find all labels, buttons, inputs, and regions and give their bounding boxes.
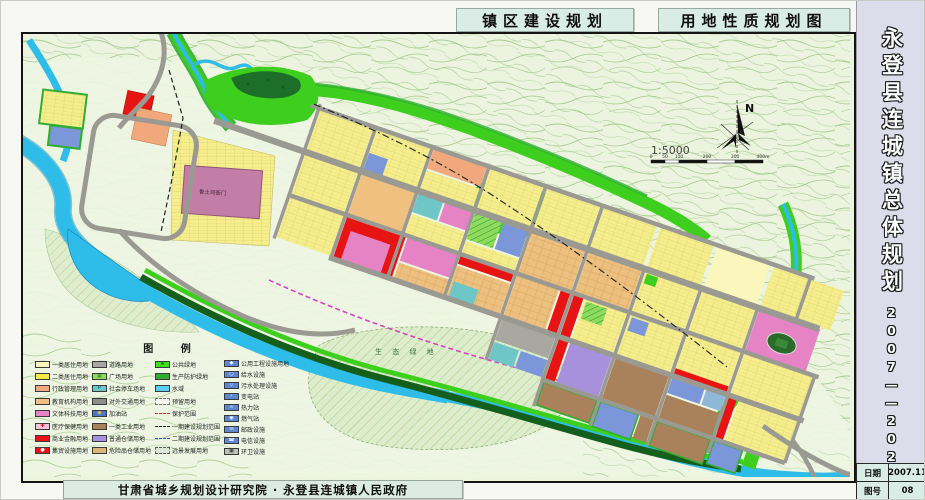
legend-swatch [35,398,50,405]
legend-item: ✚医疗保健用地 [35,420,88,432]
legend-label: 预留用地 [172,397,196,406]
legend-item: 水域 [155,383,220,395]
legend-item: 商业金融用地 [35,432,88,444]
legend-item: ▽污水处理设施 [224,380,289,391]
scale-tick: 400m [757,154,770,160]
legend-swatch [35,361,50,368]
legend-swatch [92,447,107,454]
legend-swatch [35,410,50,417]
legend-label: 二类居住用地 [52,372,88,381]
scale-tick: 200 [703,154,712,160]
legend-label: 一类工业用地 [109,422,145,431]
sheet-number-value: 08 [888,481,925,500]
date-value: 2007.11 [888,463,925,482]
legend-label: 道路用地 [109,360,133,369]
sheet-title-right: 用地性质规划图 [658,8,850,32]
sheet-title-left-text: 镇区建设规划 [482,10,608,31]
legend-swatch: P [92,385,107,392]
legend-item: 远景发展用地 [155,445,220,457]
legend-item: 行政管理用地 [35,383,88,395]
legend-item: 生产防护绿地 [155,370,220,382]
legend-label: 医疗保健用地 [52,422,88,431]
legend-item: 教育机构用地 [35,395,88,407]
legend-item: 对外交通用地 [92,395,151,407]
legend-swatch [92,361,107,368]
legend-item: ○给水设施 [224,369,289,380]
legend-swatch [35,373,50,380]
legend-item: ♣公共绿地 [155,358,220,370]
legend-swatch [155,435,170,442]
legend-swatch [155,373,170,380]
legend-item: 预留用地 [155,395,220,407]
legend-label: 给水设施 [241,370,265,379]
legend-label: 燃气站 [241,414,259,423]
scale-tick: 50 [662,154,668,160]
legend-item: 二类居住用地 [35,370,88,382]
legend-item: ⚡变电站 [224,391,289,402]
legend-swatch: ⚡ [224,393,239,400]
legend-item: 一期建设规划范围 [155,420,220,432]
legend-item: ●集贸设施用地 [35,445,88,457]
legend-swatch: ● [35,447,50,454]
legend-swatch [35,435,50,442]
legend-swatch: ◆ [224,360,239,367]
legend-label: 行政管理用地 [52,384,88,393]
legend-label: 普通仓储用地 [109,434,145,443]
credit-text: 甘肃省城乡规划设计研究院 · 永登县连城镇人民政府 [118,482,408,498]
legend-label: 教育机构用地 [52,397,88,406]
sheet-title-left: 镇区建设规划 [456,8,634,32]
scale-tick: 300 [731,154,740,160]
legend-label: 远景发展用地 [172,446,208,455]
eco-green-label: 生 态 绿 地 [375,347,438,356]
legend-item: ◆公用工程设施用地 [224,358,289,369]
legend-label: 电信设施 [241,436,265,445]
legend-swatch: ▽ [224,382,239,389]
legend-label: 商业金融用地 [52,434,88,443]
legend-swatch [155,398,170,405]
legend-swatch [92,423,107,430]
legend-swatch: ◉ [92,410,107,417]
legend-label: 社会停车场地 [109,384,145,393]
legend-item: ☎电信设施 [224,435,289,446]
legend-label: 污水处理设施 [241,381,277,390]
legend-column-4: ◆公用工程设施用地○给水设施▽污水处理设施⚡变电站≈热力站◉燃气站✉邮政设施☎电… [224,358,289,457]
legend-column-2: 道路用地▦广场用地P社会停车场地对外交通用地◉加油站一类工业用地普通仓储用地危险… [92,358,151,457]
legend-column-1: 一类居住用地二类居住用地行政管理用地教育机构用地文体科技用地✚医疗保健用地商业金… [35,358,88,457]
title-block-table: 日期 2007.11 图号 08 [856,464,925,500]
legend-label: 热力站 [241,403,259,412]
legend-label: 公用工程设施用地 [241,359,289,368]
scale-tick: 100 [675,154,684,160]
legend-item: 保护范围 [155,408,220,420]
credit-bar: 甘肃省城乡规划设计研究院 · 永登县连城镇人民政府 [63,480,463,499]
legend-item: ◉燃气站 [224,413,289,424]
legend-swatch [155,447,170,454]
legend-label: 加油站 [109,409,127,418]
legend-item: 二期建设规划范围 [155,432,220,444]
legend-title: 图 例 [35,340,311,355]
map-area[interactable]: 鲁土司衙门 [21,32,856,483]
scale-tick: 0 [650,154,653,160]
legend-item: 道路用地 [92,358,151,370]
legend-item: 一类居住用地 [35,358,88,370]
legend-label: 广场用地 [109,372,133,381]
date-label: 日期 [856,463,889,482]
legend-item: ≈热力站 [224,402,289,413]
legend-swatch [155,423,170,430]
legend-swatch [92,398,107,405]
legend-swatch: ♣ [155,361,170,368]
legend-swatch [92,435,107,442]
legend-swatch: ▦ [92,373,107,380]
legend-label: 二期建设规划范围 [172,434,220,443]
legend-label: 文体科技用地 [52,409,88,418]
legend-swatch: ◉ [224,415,239,422]
legend-item: ▣环卫设施 [224,446,289,457]
sheet-title-right-text: 用地性质规划图 [680,10,827,31]
legend-column-3: ♣公共绿地生产防护绿地水域预留用地保护范围一期建设规划范围二期建设规划范围远景发… [155,358,220,457]
legend-label: 集贸设施用地 [52,446,88,455]
north-label: N [745,102,754,115]
legend-swatch [35,385,50,392]
plan-period: 2007——2020 [884,305,899,485]
legend-item: 普通仓储用地 [92,432,151,444]
legend-swatch: ☎ [224,437,239,444]
legend-swatch: ≈ [224,404,239,411]
legend-label: 对外交通用地 [109,397,145,406]
legend-item: 危险品仓储用地 [92,445,151,457]
legend-label: 保护范围 [172,409,196,418]
legend-label: 危险品仓储用地 [109,446,151,455]
legend-label: 一期建设规划范围 [172,422,220,431]
legend-swatch: ✚ [35,423,50,430]
plan-sheet: 镇区建设规划 用地性质规划图 [0,0,925,500]
legend-swatch [155,410,170,417]
legend-item: ◉加油站 [92,408,151,420]
legend-label: 邮政设施 [241,425,265,434]
legend-item: 一类工业用地 [92,420,151,432]
legend-item: ✉邮政设施 [224,424,289,435]
legend-label: 生产防护绿地 [172,372,208,381]
legend-swatch: ○ [224,371,239,378]
title-block-sidebar: 永登县连城镇总体规划 2007——2020 日期 2007.11 图号 08 [856,1,925,500]
legend-label: 水域 [172,384,184,393]
project-title-vertical: 永登县连城镇总体规划 [877,27,907,297]
legend-label: 一类居住用地 [52,360,88,369]
legend-label: 公共绿地 [172,360,196,369]
scale-text: 1:5000 [651,144,690,157]
legend-label: 变电站 [241,392,259,401]
legend-item: P社会停车场地 [92,383,151,395]
sheet-number-label: 图号 [856,481,889,500]
legend: 图 例 一类居住用地二类居住用地行政管理用地教育机构用地文体科技用地✚医疗保健用… [35,340,311,472]
legend-swatch: ✉ [224,426,239,433]
legend-item: ▦广场用地 [92,370,151,382]
legend-swatch: ▣ [224,448,239,455]
legend-swatch [155,385,170,392]
legend-label: 环卫设施 [241,447,265,456]
legend-item: 文体科技用地 [35,408,88,420]
